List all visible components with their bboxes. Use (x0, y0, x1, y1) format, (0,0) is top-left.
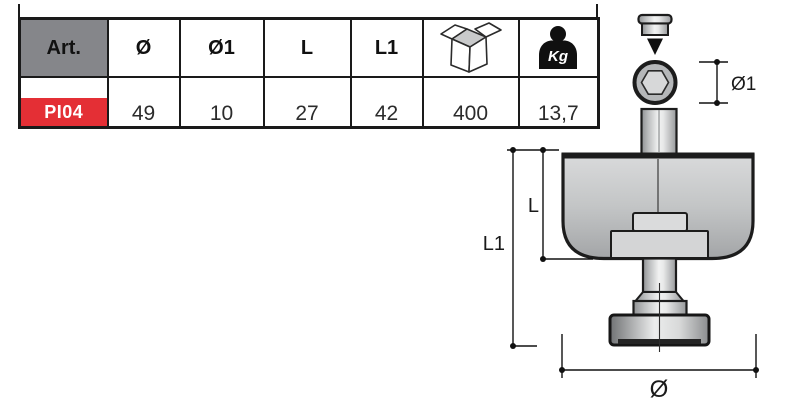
article-code-cell: PI04 (20, 77, 108, 128)
value-length1: 42 (351, 77, 423, 128)
article-code-badge: PI04 (21, 98, 107, 126)
col-header-diameter: Ø (108, 19, 180, 78)
col-header-length: L (264, 19, 351, 78)
dim-label-l: L (528, 195, 539, 217)
technical-drawing: Ø1 L L1 (470, 0, 790, 404)
page-crop-mark-left (18, 4, 20, 17)
col-header-diameter1: Ø1 (180, 19, 264, 78)
dim-label-d: Ø (650, 376, 669, 403)
dimension-d1: Ø1 (699, 59, 756, 106)
cap-part (639, 15, 672, 35)
value-length: 27 (264, 77, 351, 128)
value-diameter1: 10 (180, 77, 264, 128)
top-stem (642, 109, 677, 154)
assembly-arrow-icon (647, 39, 663, 56)
dim-label-d1: Ø1 (731, 74, 756, 95)
hex-socket-top-view (635, 62, 676, 103)
value-diameter: 49 (108, 77, 180, 128)
dim-label-l1: L1 (483, 233, 505, 255)
foot-base (610, 283, 709, 352)
col-header-art: Art. (20, 19, 108, 78)
col-header-length1: L1 (351, 19, 423, 78)
